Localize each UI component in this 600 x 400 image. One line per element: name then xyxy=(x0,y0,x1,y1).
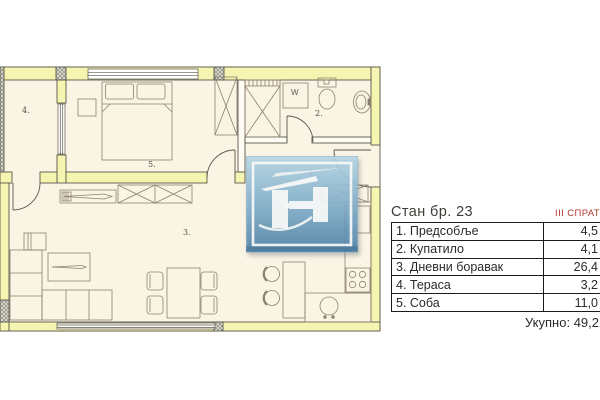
washer-label: W xyxy=(291,89,299,97)
total-area: Укупно: 49,2 xyxy=(391,315,600,330)
room-label-bathroom: 2. xyxy=(315,110,323,118)
room-label-terrace: 4. xyxy=(22,107,30,115)
room-name: 2. Купатило xyxy=(392,242,543,256)
table-row: 4. Тераса 3,2 xyxy=(392,276,600,294)
room-label-bedroom: 5. xyxy=(148,161,156,169)
room-area: 3,2 xyxy=(543,276,600,293)
room-name: 1. Предсобље xyxy=(392,224,543,238)
table-row: 1. Предсобље 4,5 xyxy=(392,223,600,241)
room-area: 4,1 xyxy=(543,241,600,258)
info-panel: Стан бр. 23 III СПРАТ 1. Предсобље 4,5 2… xyxy=(391,200,600,330)
panel-header: Стан бр. 23 III СПРАТ xyxy=(391,200,600,220)
floorplan-screen: 4. 5. 2. 1. 3. W F xyxy=(0,0,600,400)
room-label-living: 3. xyxy=(183,229,191,237)
floor-badge: III СПРАТ xyxy=(555,208,600,220)
room-area: 26,4 xyxy=(543,259,600,276)
room-name: 4. Тераса xyxy=(392,278,543,292)
total-label: Укупно: xyxy=(525,315,570,330)
table-row: 3. Дневни боравак 26,4 xyxy=(392,259,600,277)
room-area: 11,0 xyxy=(543,294,600,311)
total-value: 49,2 xyxy=(574,315,599,330)
table-row: 2. Купатило 4,1 xyxy=(392,241,600,259)
room-area: 4,5 xyxy=(543,223,600,240)
watermark-logo xyxy=(246,156,358,253)
table-row: 5. Соба 11,0 xyxy=(392,294,600,311)
room-name: 5. Соба xyxy=(392,296,543,310)
builder-logo-icon xyxy=(246,156,358,253)
rooms-table: 1. Предсобље 4,5 2. Купатило 4,1 3. Днев… xyxy=(391,222,600,312)
apartment-title: Стан бр. 23 xyxy=(391,204,473,220)
room-name: 3. Дневни боравак xyxy=(392,260,543,274)
